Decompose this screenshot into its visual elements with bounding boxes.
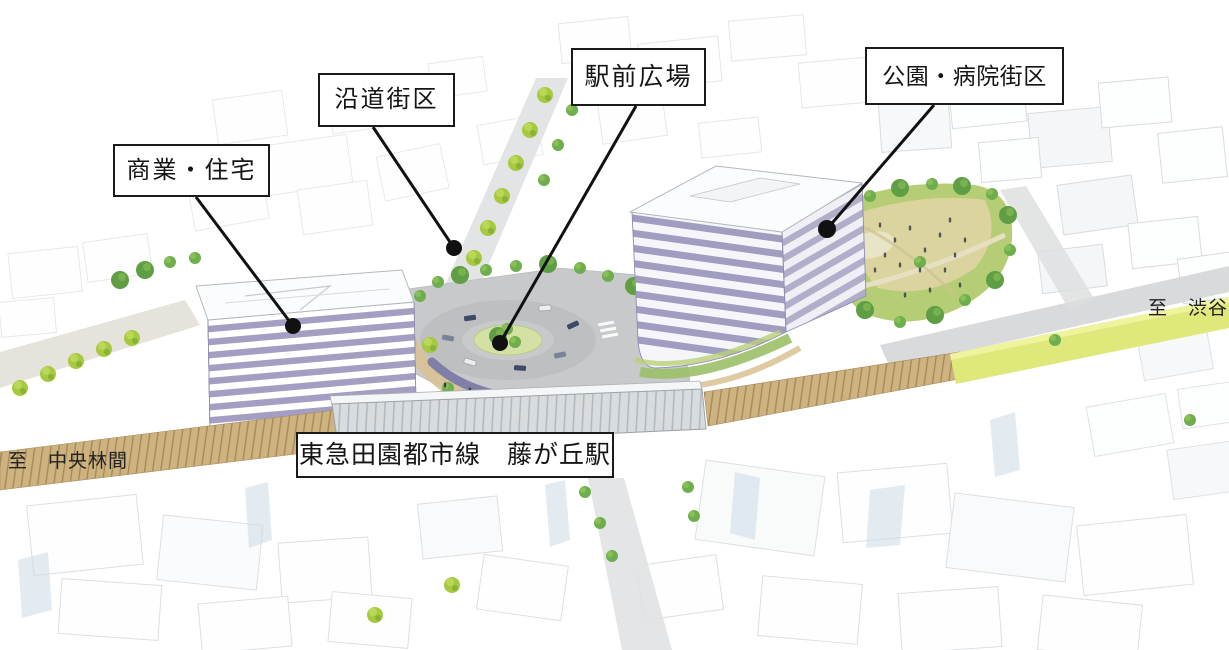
- callout-roadside-block: 沿道街区: [318, 73, 455, 127]
- callout-commercial-residential: 商業・住宅: [113, 144, 270, 197]
- direction-to-chuo-rinkan: 至 中央林間: [8, 446, 128, 473]
- direction-to-shibuya: 至 渋谷: [1148, 293, 1228, 320]
- callout-station-plaza: 駅前広場: [571, 48, 706, 106]
- callout-station-plaza-label: 駅前広場: [584, 65, 692, 90]
- callout-station-name: 東急田園都市線 藤が丘駅: [296, 432, 614, 478]
- callout-park-hospital-block: 公園・病院街区: [865, 47, 1064, 105]
- callout-commercial-residential-label: 商業・住宅: [127, 159, 257, 183]
- direction-to-shibuya-label: 至 渋谷: [1148, 298, 1228, 319]
- direction-to-chuo-rinkan-label: 至 中央林間: [8, 451, 128, 472]
- station-name-label: 東急田園都市線 藤が丘駅: [299, 443, 611, 468]
- callout-roadside-block-label: 沿道街区: [335, 88, 439, 112]
- callout-park-hospital-block-label: 公園・病院街区: [882, 65, 1047, 88]
- redevelopment-perspective-rendering: 商業・住宅 沿道街区 駅前広場 公園・病院街区 東急田園都市線 藤が丘駅 至 渋…: [0, 0, 1229, 650]
